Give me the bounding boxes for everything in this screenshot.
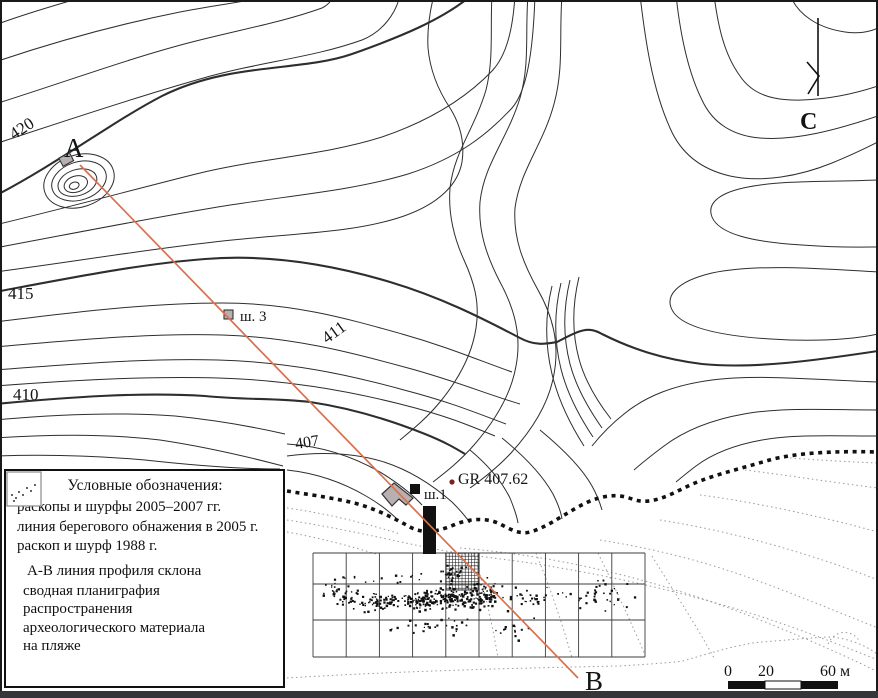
legend-item-label: раскоп и шурф 1988 г. (17, 538, 157, 554)
scale-bar: 0 20 60 м (724, 663, 850, 689)
north-arrow-icon (807, 18, 819, 96)
scale-tick-0: 0 (724, 663, 732, 680)
legend-box: Условные обозначения: раскопы и шурфы 20… (4, 469, 285, 688)
north-label: С (800, 109, 817, 135)
contour-label-415: 415 (8, 284, 34, 303)
test-pit-1-label: ш.1 (424, 487, 447, 503)
site-map-figure: 0 20 60 м А В С 420 415 410 411 407 GR 4… (0, 0, 878, 698)
point-a-label: А (64, 133, 84, 163)
legend-item-label: линия берегового обнажения в 2005 г. (17, 519, 258, 535)
legend-title: Условные обозначения: (12, 476, 278, 495)
contour-lines (0, 0, 878, 523)
legend-item-profile-line: А-В линия профиля склона (12, 557, 278, 581)
test-pit-1-marker (410, 484, 420, 494)
legend-item-label: А-В линия профиля склона (27, 562, 237, 581)
contour-label-407: 407 (294, 432, 320, 453)
legend-item-excavation-1988: раскоп и шурф 1988 г. (12, 537, 278, 556)
contour-label-410: 410 (13, 385, 39, 404)
map-border-bottom-bar (0, 691, 878, 698)
legend-item-label: раскопы и шурфы 2005–2007 гг. (17, 499, 221, 515)
test-pit-3-label: ш. 3 (240, 309, 267, 325)
scale-tick-20: 20 (758, 663, 774, 680)
beach-dotted-contours (287, 458, 878, 678)
gr-point-label: GR 407.62 (458, 471, 528, 488)
contour-label-411: 411 (318, 317, 349, 347)
gr-point-dot (449, 479, 454, 484)
legend-item-label: сводная планиграфия распространения архе… (23, 582, 223, 656)
legend-item-excavations-2005-2007: раскопы и шурфы 2005–2007 гг. (12, 498, 278, 517)
legend-item-planigraphy: сводная планиграфия распространения архе… (12, 582, 278, 656)
shore-exposure-line (287, 452, 878, 533)
legend-item-shore-exposure: линия берегового обнажения в 2005 г. (12, 518, 259, 537)
scale-tick-60: 60 м (820, 663, 850, 680)
